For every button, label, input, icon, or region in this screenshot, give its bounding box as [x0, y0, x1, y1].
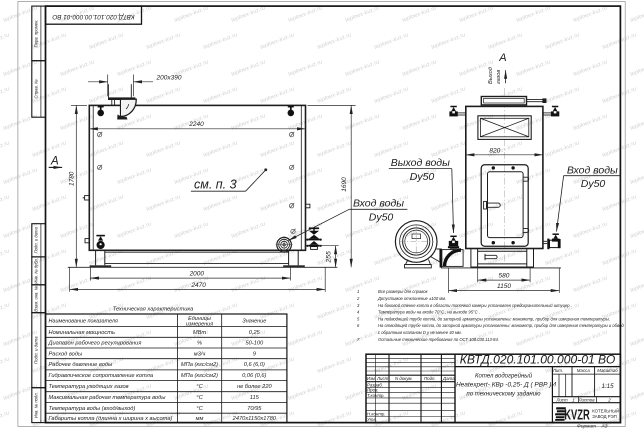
- svg-text:Н.контр.: Н.контр.: [367, 412, 386, 417]
- svg-text:А3: А3: [601, 424, 608, 430]
- svg-text:мм: мм: [196, 416, 204, 422]
- svg-text:Масса: Масса: [577, 368, 591, 373]
- svg-text:Dy50: Dy50: [410, 171, 435, 183]
- svg-text:Максимальная рабочая температу: Максимальная рабочая температура воды: [49, 395, 167, 401]
- svg-text:820: 820: [489, 147, 500, 154]
- svg-text:2470: 2470: [190, 282, 206, 289]
- svg-text:1690: 1690: [341, 177, 348, 192]
- svg-text:А: А: [498, 52, 506, 64]
- svg-text:Инв. № дубл.: Инв. № дубл.: [34, 258, 39, 284]
- svg-text:200х390: 200х390: [156, 75, 182, 82]
- svg-text:На отводящей трубе котла, до з: На отводящей трубе котла, до запорной ар…: [378, 323, 624, 328]
- svg-text:KVZR: KVZR: [564, 408, 590, 424]
- svg-text:Номинальная мощность: Номинальная мощность: [49, 330, 115, 336]
- svg-text:°С: °С: [196, 406, 203, 412]
- svg-text:Т.контр.: Т.контр.: [367, 393, 385, 398]
- svg-text:2470х1150х1780: 2470х1150х1780: [232, 416, 277, 422]
- svg-text:Перв. примен.: Перв. примен.: [34, 19, 39, 47]
- svg-text:с обратным клапаном D у не ме: с обратным клапаном D у не менее 40 мм.: [378, 330, 462, 335]
- svg-text:Дата: Дата: [442, 376, 455, 381]
- svg-text:Dy50: Dy50: [581, 178, 606, 190]
- svg-text:м3/ч: м3/ч: [194, 351, 206, 357]
- svg-text:Техническая характеристика: Техническая характеристика: [113, 307, 194, 313]
- svg-text:по техническому заданию: по техническому заданию: [466, 392, 541, 398]
- svg-text:Разраб.: Разраб.: [367, 382, 383, 387]
- svg-text:Все размеры для справок: Все размеры для справок: [378, 289, 429, 294]
- svg-text:Температура воды на входе 70°: Температура воды на входе 70°С , на выхо…: [378, 310, 480, 315]
- svg-text:1:15: 1:15: [601, 383, 614, 390]
- svg-text:МВт: МВт: [193, 330, 207, 336]
- svg-text:1: 1: [357, 289, 359, 294]
- svg-text:0,06 (0,6): 0,06 (0,6): [242, 373, 266, 379]
- svg-text:Значение: Значение: [242, 319, 266, 325]
- svg-text:°С: °С: [196, 384, 203, 390]
- svg-text:°С: °С: [196, 395, 203, 401]
- svg-text:Температура уходящих газов: Температура уходящих газов: [49, 384, 129, 390]
- svg-text:Лит.: Лит.: [552, 368, 563, 373]
- svg-text:Вход воды: Вход воды: [353, 198, 404, 210]
- svg-text:2240: 2240: [188, 121, 204, 128]
- svg-text:см. п. 3: см. п. 3: [194, 178, 237, 192]
- svg-text:Остальные технические требован: Остальные технические требования по ОСТ …: [378, 337, 499, 342]
- svg-text:Допустимое отклонение ±100 мм: Допустимое отклонение ±100 мм.: [377, 296, 446, 301]
- svg-text:КОТЕЛЬНЫЙ: КОТЕЛЬНЫЙ: [592, 408, 619, 413]
- svg-text:Подп. и дата: Подп. и дата: [34, 336, 39, 364]
- svg-text:Heatexpert- КВр -0,25- Д ( РВР: Heatexpert- КВр -0,25- Д ( РВР )И: [456, 382, 556, 389]
- svg-text:115: 115: [250, 395, 260, 401]
- svg-text:580: 580: [498, 273, 509, 280]
- svg-text:Температура воды (вход/выход): Температура воды (вход/выход): [49, 406, 136, 412]
- svg-text:Диапазон рабочего регулировани: Диапазон рабочего регулирования: [48, 341, 142, 347]
- svg-text:МПа (кгс/см2): МПа (кгс/см2): [181, 373, 218, 379]
- svg-text:Подп. и дата: Подп. и дата: [34, 227, 39, 254]
- svg-text:Наименование показателя: Наименование показателя: [49, 319, 118, 325]
- svg-text:На боковой стенке котла в обла: На боковой стенке котла в области топочн…: [378, 303, 570, 308]
- svg-text:Формат: Формат: [577, 424, 596, 430]
- svg-text:Расход воды: Расход воды: [49, 351, 83, 357]
- svg-text:ЗАВОД РЭП: ЗАВОД РЭП: [592, 414, 617, 419]
- svg-text:Выход воды: Выход воды: [391, 157, 450, 169]
- svg-text:Выход: Выход: [488, 67, 494, 84]
- svg-text:Утв.: Утв.: [367, 417, 377, 422]
- svg-text:КВТД.020.101.00.000-01 ВО: КВТД.020.101.00.000-01 ВО: [460, 353, 616, 367]
- svg-text:не более 220: не более 220: [237, 384, 273, 390]
- svg-text:255: 255: [326, 251, 333, 264]
- svg-text:Изм: Изм: [367, 376, 375, 381]
- svg-text:КВТД.020.101.00.000-01 ВО: КВТД.020.101.00.000-01 ВО: [52, 13, 134, 20]
- svg-text:2000: 2000: [189, 271, 205, 278]
- svg-text:Взам. инв. №: Взам. инв. №: [34, 285, 39, 311]
- svg-text:газов: газов: [496, 70, 502, 84]
- svg-text:На подводящей трубе котла, д: На подводящей трубе котла, до запорной а…: [378, 316, 610, 321]
- svg-text:Пров.: Пров.: [367, 388, 379, 393]
- svg-text:Габариты котла (длинна х ширин: Габариты котла (длинна х ширина х высота…: [49, 416, 173, 422]
- svg-text:2: 2: [607, 397, 611, 402]
- svg-text:0,6 (6,0): 0,6 (6,0): [244, 362, 265, 368]
- svg-text:70/95: 70/95: [247, 406, 262, 412]
- svg-text:Лист: Лист: [555, 397, 568, 402]
- svg-text:%: %: [197, 341, 202, 347]
- svg-text:измерения: измерения: [186, 322, 213, 328]
- svg-text:Dy50: Dy50: [369, 212, 394, 224]
- svg-text:Масштаб: Масштаб: [597, 368, 618, 373]
- svg-text:1150: 1150: [497, 283, 511, 290]
- svg-text:Лист: Лист: [376, 376, 389, 381]
- svg-text:Котел водогрейный: Котел водогрейный: [475, 373, 533, 380]
- svg-text:А: А: [50, 156, 59, 168]
- svg-text:1780: 1780: [69, 171, 76, 186]
- svg-text:50-100: 50-100: [245, 341, 264, 347]
- svg-text:Подп.: Подп.: [424, 376, 436, 381]
- svg-text:Рабочее давление воды: Рабочее давление воды: [49, 362, 114, 368]
- svg-text:N докум.: N докум.: [395, 376, 413, 381]
- svg-text:Инв. № подл.: Инв. № подл.: [34, 392, 39, 418]
- svg-text:МПа (кгс/см2): МПа (кгс/см2): [181, 362, 218, 368]
- svg-text:Гидравлическое сопротивление к: Гидравлическое сопротивление котла: [49, 373, 154, 379]
- svg-text:Справ. №: Справ. №: [34, 79, 39, 98]
- svg-text:0,25: 0,25: [249, 330, 261, 336]
- svg-text:Вход воды: Вход воды: [567, 164, 618, 176]
- svg-text:Листов: Листов: [578, 397, 596, 402]
